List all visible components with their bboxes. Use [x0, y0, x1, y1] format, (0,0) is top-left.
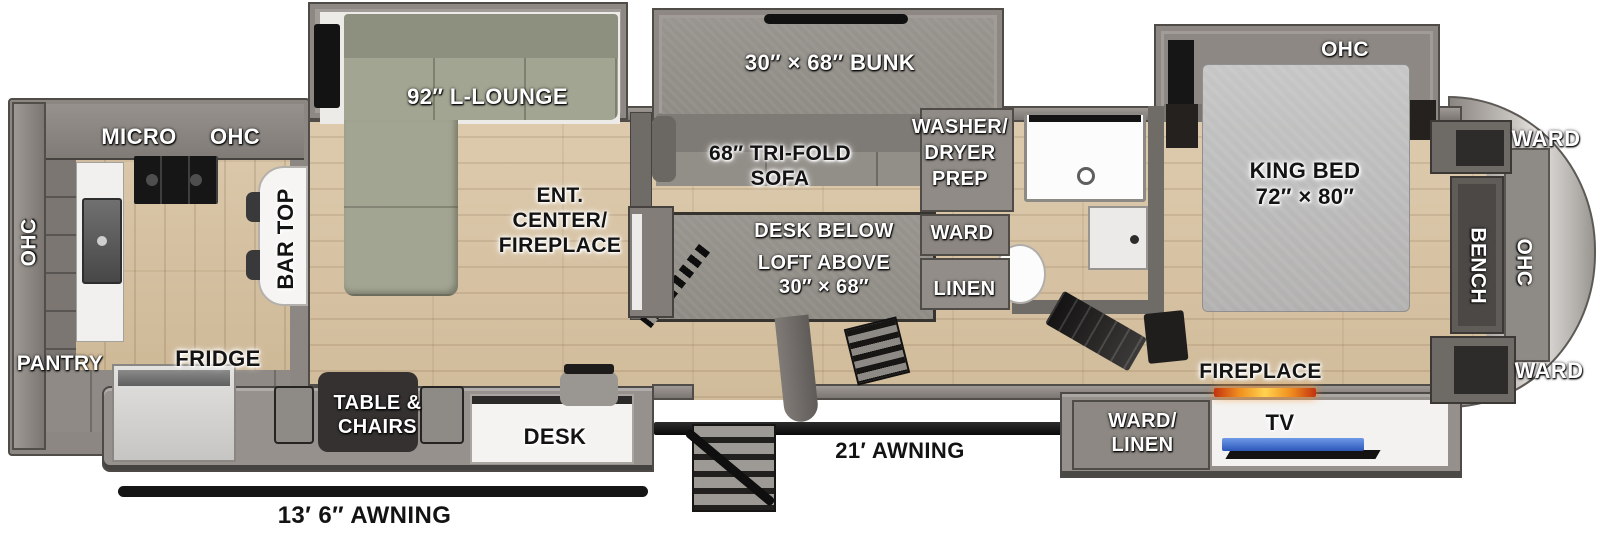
bunk-window-strip: [764, 14, 908, 24]
bar-stool: [246, 192, 260, 222]
label-ohc-bedroom-slide: OHC: [1310, 38, 1380, 63]
nightstand: [1166, 104, 1198, 148]
cabinet-opening: [1456, 130, 1504, 166]
label-fridge: FRIDGE: [168, 346, 268, 372]
label-bench: BENCH: [1465, 227, 1490, 297]
label-fireplace: FIREPLACE: [1198, 360, 1323, 385]
sink-drain: [97, 236, 107, 246]
dinette-chair: [274, 386, 314, 444]
label-ohc-front: OHC: [1511, 230, 1536, 294]
ward-cabinet-top: [1430, 120, 1512, 174]
label-desk-below: DESK BELOW: [744, 220, 904, 244]
label-micro: MICRO: [84, 124, 194, 150]
fridge-lid: [118, 370, 230, 386]
floorplan-canvas: MICRO OHC OHC PANTRY FRIDGE BAR TOP 92″ …: [0, 0, 1600, 538]
l-lounge-sofa-chaise: [344, 120, 458, 296]
label-ward: WARD: [912, 222, 1012, 246]
burner: [190, 174, 202, 186]
label-l-lounge: 92″ L-LOUNGE: [385, 84, 590, 110]
awning-rail-left: [118, 486, 648, 497]
shower-top-bar: [1029, 115, 1141, 122]
label-ohc-kitchen-top: OHC: [190, 124, 280, 150]
label-ohc-kitchen-left: OHC: [18, 210, 43, 274]
label-desk: DESK: [520, 424, 590, 450]
shower: [1024, 112, 1146, 202]
desk-chair-back: [564, 364, 614, 374]
label-awning-left: 13′ 6″ AWNING: [272, 502, 457, 530]
label-loft-above: LOFT ABOVE 30″ × 68″: [744, 252, 904, 299]
label-bunk: 30″ × 68″ BUNK: [700, 50, 960, 76]
tv-screen: [1222, 438, 1364, 451]
label-pantry: PANTRY: [10, 352, 110, 377]
bedroom-step-landing: [1143, 310, 1188, 364]
fridge: [112, 364, 236, 462]
fireplace-flame: [1214, 388, 1316, 397]
shower-drain: [1077, 167, 1095, 185]
label-ent-center: ENT. CENTER/ FIREPLACE: [495, 184, 625, 258]
label-ward-linen: WARD/ LINEN: [1100, 410, 1185, 457]
kitchen-ohc-left-band: [12, 102, 46, 450]
label-trifold-sofa: 68″ TRI-FOLD SOFA: [690, 142, 870, 192]
label-washer-dryer-prep: WASHER/ DRYER PREP: [900, 114, 1020, 192]
l-lounge-sofa-back: [344, 14, 618, 58]
faucet: [1130, 235, 1139, 244]
cabinet-opening: [1454, 346, 1508, 394]
bathroom-right-wall: [1148, 106, 1164, 314]
label-awning-main: 21′ AWNING: [830, 438, 970, 464]
label-linen: LINEN: [912, 278, 1017, 302]
label-bar-top: BAR TOP: [273, 187, 299, 291]
trifold-sofa-arm: [652, 116, 676, 182]
stove: [134, 156, 218, 204]
lounge-window: [314, 24, 340, 108]
label-tv: TV: [1258, 410, 1302, 436]
tv-base: [1225, 450, 1380, 459]
bottom-wall-b: [652, 384, 694, 400]
bar-stool: [246, 250, 260, 280]
entertainment-center: [628, 206, 674, 318]
label-king-bed: KING BED 72″ × 80″: [1230, 158, 1380, 210]
label-table-chairs: TABLE & CHAIRS: [320, 392, 435, 439]
ward-cabinet-bottom: [1430, 336, 1516, 404]
label-ward-front-bottom: WARD: [1510, 358, 1588, 384]
burner: [146, 174, 158, 186]
desk-chair: [560, 372, 618, 406]
label-ward-front-top: WARD: [1508, 126, 1584, 152]
entertainment-center-front: [632, 214, 642, 310]
bathroom-sink: [1088, 206, 1148, 270]
kitchen-sink: [82, 198, 122, 284]
bedroom-window: [1168, 40, 1194, 104]
